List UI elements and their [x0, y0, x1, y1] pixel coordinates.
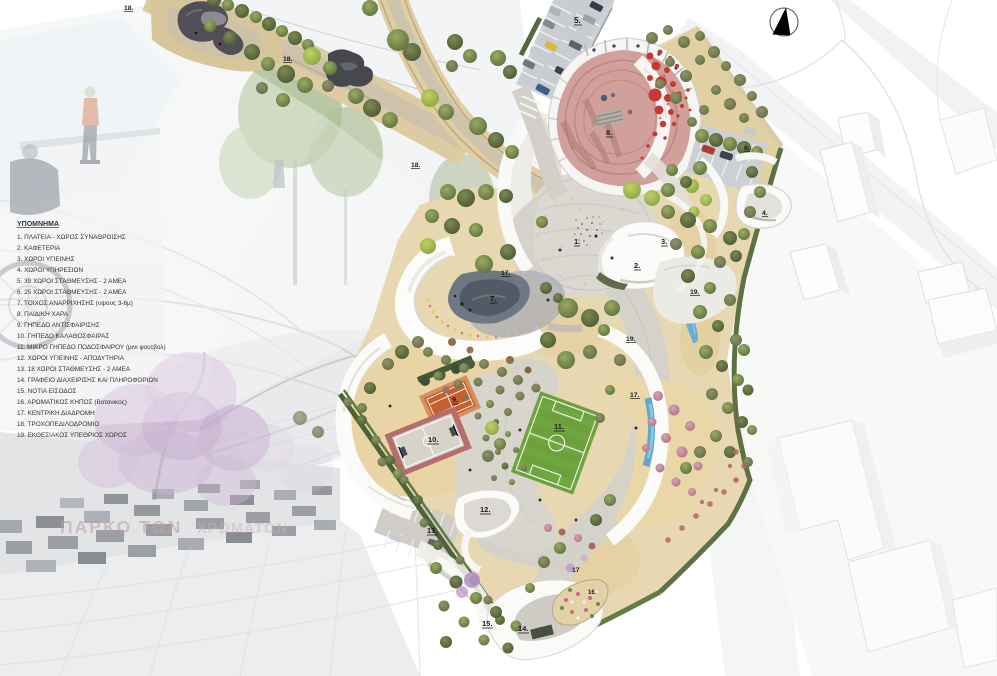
svg-text:18.: 18. [411, 162, 421, 169]
svg-text:12. ΧΩΡΟΙ ΥΓΙΕΙΝΗΣ - ΑΠΟΔΥΤΗΡΙ: 12. ΧΩΡΟΙ ΥΓΙΕΙΝΗΣ - ΑΠΟΔΥΤΗΡΙΑ [17, 355, 125, 362]
svg-text:ΥΠΟΜΝΗΜΑ: ΥΠΟΜΝΗΜΑ [17, 221, 59, 228]
svg-text:ΧΡΩΜΑΤΩΝ: ΧΡΩΜΑΤΩΝ [197, 521, 288, 537]
svg-text:6. 25 ΧΩΡΟΙ ΣΤΑΘΜΕΥΣΗΣ - 2 ΑΜΕ: 6. 25 ΧΩΡΟΙ ΣΤΑΘΜΕΥΣΗΣ - 2 ΑΜΕΑ [17, 289, 127, 296]
svg-text:18. ΤΡΟΧΟΠΕΔΙΛΟΔΡΟΜΙΟ: 18. ΤΡΟΧΟΠΕΔΙΛΟΔΡΟΜΙΟ [17, 421, 99, 428]
svg-text:ΠΑΡΚΟ ΤΩΝ: ΠΑΡΚΟ ΤΩΝ [60, 517, 182, 537]
svg-text:1.: 1. [574, 237, 580, 246]
svg-text:8. ΠΑΙΔΙΚΗ ΧΑΡΑ: 8. ΠΑΙΔΙΚΗ ΧΑΡΑ [17, 311, 69, 318]
svg-text:14. ΓΡΑΦΕΙΟ ΔΙΑΧΕΙΡΙΣΗΣ ΚΑΙ ΠΛ: 14. ΓΡΑΦΕΙΟ ΔΙΑΧΕΙΡΙΣΗΣ ΚΑΙ ΠΛΗΡΟΦΟΡΙΩΝ [17, 377, 158, 384]
svg-text:8.: 8. [606, 128, 612, 137]
svg-text:15.: 15. [482, 619, 492, 628]
svg-text:15. ΝΟΤΙΑ ΕΙΣΟΔΟΣ: 15. ΝΟΤΙΑ ΕΙΣΟΔΟΣ [17, 388, 77, 395]
svg-text:5. 39 ΧΩΡΟΙ ΣΤΑΘΜΕΥΣΗΣ - 2 ΑΜΕ: 5. 39 ΧΩΡΟΙ ΣΤΑΘΜΕΥΣΗΣ - 2 ΑΜΕΑ [17, 278, 127, 285]
svg-text:18.: 18. [124, 5, 134, 12]
svg-text:10. ΓΗΠΕΔΟ ΚΑΛΑΘΟΣΦΑΙΡΑΣ: 10. ΓΗΠΕΔΟ ΚΑΛΑΘΟΣΦΑΙΡΑΣ [17, 333, 109, 340]
svg-text:19.: 19. [690, 289, 700, 296]
svg-text:7. ΤΟΙΧΟΣ ΑΝΑΡΡΙΧΗΣΗΣ (υψους 3: 7. ΤΟΙΧΟΣ ΑΝΑΡΡΙΧΗΣΗΣ (υψους 3-6μ) [17, 300, 133, 307]
svg-text:16.: 16. [588, 590, 597, 596]
svg-text:10.: 10. [428, 435, 438, 444]
svg-text:19.: 19. [626, 336, 636, 343]
svg-text:13.: 13. [427, 526, 437, 535]
svg-text:16. ΑΡΩΜΑΤΙΚΟΣ ΚΗΠΟΣ (Βοτανικο: 16. ΑΡΩΜΑΤΙΚΟΣ ΚΗΠΟΣ (Βοτανικος) [17, 399, 127, 406]
svg-text:18.: 18. [283, 56, 293, 63]
svg-text:3.: 3. [661, 237, 667, 246]
svg-text:11.: 11. [554, 422, 564, 431]
svg-text:4.: 4. [762, 210, 768, 217]
svg-text:11. ΜΙΚΡΟ ΓΗΠΕΔΟ ΠΟΔΟΣΦΑΙΡΟΥ (: 11. ΜΙΚΡΟ ΓΗΠΕΔΟ ΠΟΔΟΣΦΑΙΡΟΥ (μινι φουτβ… [17, 344, 166, 351]
svg-text:7.: 7. [490, 294, 496, 303]
svg-text:17: 17 [572, 567, 580, 574]
svg-text:9.: 9. [452, 395, 458, 404]
svg-text:3. ΧΩΡΟΙ ΥΓΙΕΙΝΗΣ: 3. ΧΩΡΟΙ ΥΓΙΕΙΝΗΣ [17, 256, 75, 263]
svg-text:14.: 14. [518, 624, 528, 633]
svg-text:12.: 12. [480, 505, 490, 514]
svg-text:13. 18 ΧΩΡΟΙ ΣΤΑΘΜΕΥΣΗΣ - 2 ΑΜ: 13. 18 ΧΩΡΟΙ ΣΤΑΘΜΕΥΣΗΣ - 2 ΑΜΕΑ [17, 366, 131, 373]
svg-text:2.: 2. [634, 261, 640, 270]
svg-text:5.: 5. [574, 16, 581, 25]
svg-text:17.: 17. [630, 392, 640, 399]
svg-text:1. ΠΛΑΤΕΙΑ - ΧΩΡΟΣ ΣΥΝΑΘΡΟΙΣΗΣ: 1. ΠΛΑΤΕΙΑ - ΧΩΡΟΣ ΣΥΝΑΘΡΟΙΣΗΣ [17, 234, 126, 241]
svg-text:19. ΕΚΘΕΣΙΑΚΟΣ ΥΠΕΘΡΙΟΣ ΧΩΡΟΣ: 19. ΕΚΘΕΣΙΑΚΟΣ ΥΠΕΘΡΙΟΣ ΧΩΡΟΣ [17, 432, 127, 439]
svg-text:17. ΚΕΝΤΡΙΚΗ ΔΙΑΔΡΟΜΗ: 17. ΚΕΝΤΡΙΚΗ ΔΙΑΔΡΟΜΗ [17, 410, 95, 417]
svg-text:6.: 6. [744, 145, 750, 152]
svg-text:9. ΓΗΠΕΔΟ ΑΝΤΙΣΦΑΙΡΙΣΗΣ: 9. ΓΗΠΕΔΟ ΑΝΤΙΣΦΑΙΡΙΣΗΣ [17, 322, 100, 329]
svg-text:2. ΚΑΦΕΤΕΡΙΑ: 2. ΚΑΦΕΤΕΡΙΑ [17, 245, 61, 252]
svg-text:4. ΧΩΡΟΙ ΥΠΗΡΕΣΙΩΝ: 4. ΧΩΡΟΙ ΥΠΗΡΕΣΙΩΝ [17, 267, 83, 274]
svg-text:17.: 17. [501, 270, 511, 277]
